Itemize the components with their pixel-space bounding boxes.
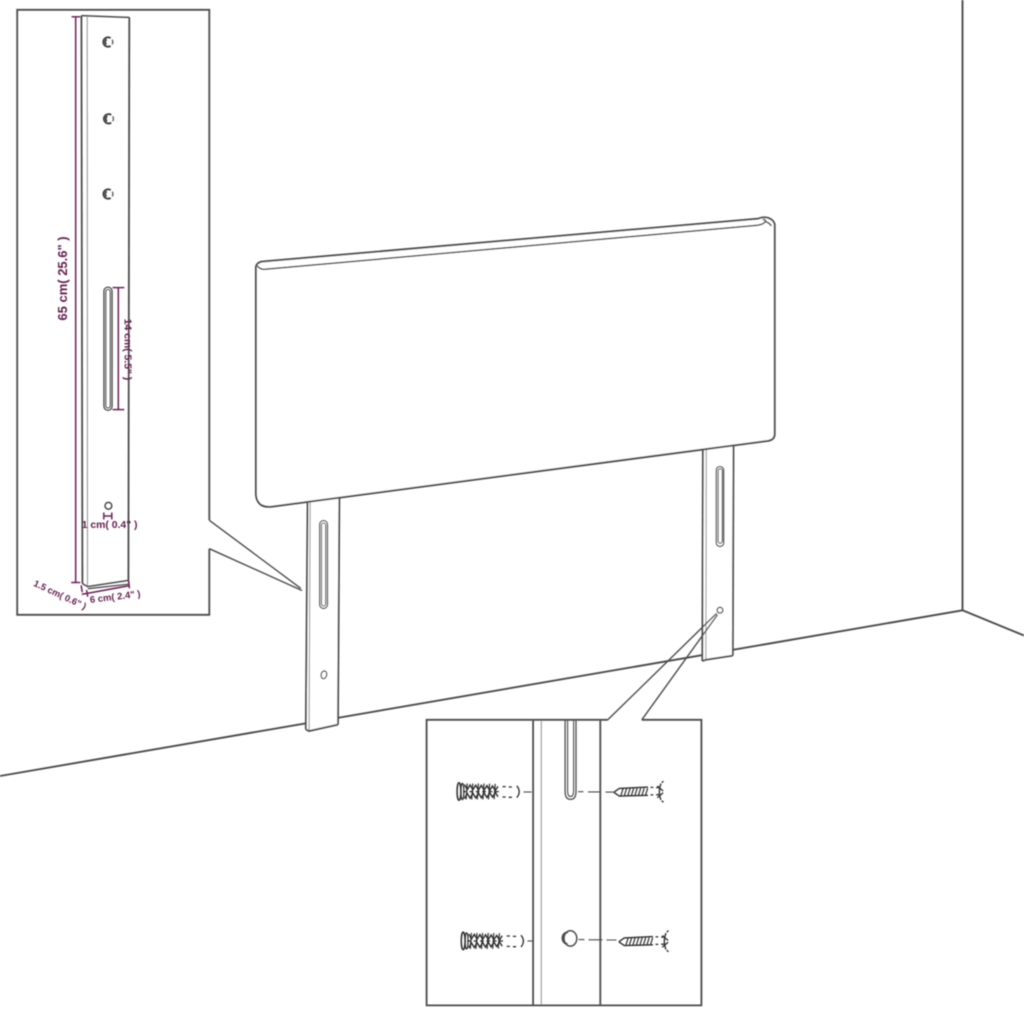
svg-text:1 cm( 0.4" ): 1 cm( 0.4" ) <box>82 520 138 531</box>
svg-text:65 cm( 25.6" ): 65 cm( 25.6" ) <box>55 236 70 320</box>
svg-text:14 cm( 5.5" ): 14 cm( 5.5" ) <box>121 319 132 381</box>
